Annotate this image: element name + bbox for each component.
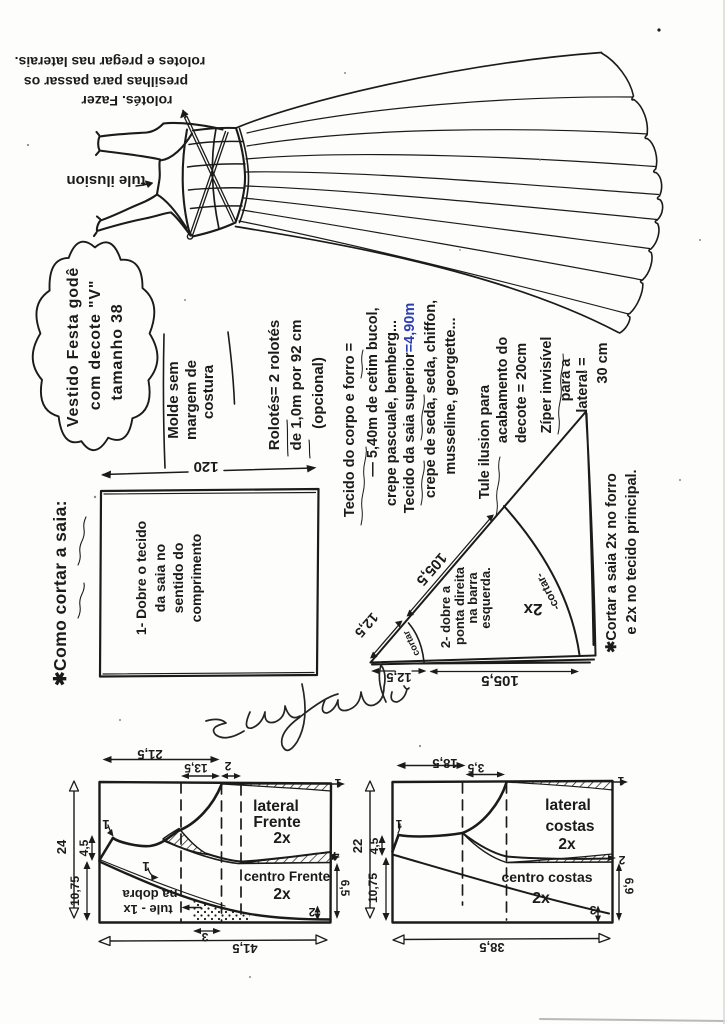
svg-text:1- Dobre o tecido: 1- Dobre o tecido	[133, 521, 149, 635]
svg-text:120: 120	[193, 458, 218, 475]
svg-text:tamanho 38: tamanho 38	[109, 304, 126, 401]
svg-text:lateral: lateral	[253, 798, 299, 815]
svg-text:1: 1	[102, 817, 109, 832]
svg-text:tule - 1x: tule - 1x	[123, 902, 173, 917]
svg-text:1: 1	[334, 776, 341, 790]
svg-text:2x: 2x	[273, 886, 291, 903]
svg-text:2: 2	[308, 905, 315, 919]
svg-text:esquerda.: esquerda.	[478, 567, 493, 628]
svg-text:Zíper invisível: Zíper invisível	[539, 337, 555, 434]
svg-text:4,5: 4,5	[367, 837, 381, 854]
svg-text:13,5: 13,5	[184, 761, 208, 775]
svg-text:presilhas para passar os: presilhas para passar os	[24, 74, 188, 90]
svg-text:centro costas: centro costas	[501, 869, 592, 885]
svg-text:3: 3	[201, 930, 208, 944]
svg-text:105,5: 105,5	[481, 672, 519, 689]
svg-text:2x: 2x	[273, 830, 291, 847]
svg-text:Tecido do corpo e forro =: Tecido do corpo e forro =	[342, 343, 358, 517]
svg-text:costas: costas	[545, 818, 594, 835]
svg-text:3: 3	[589, 903, 596, 917]
svg-text:(opcional): (opcional)	[310, 357, 327, 429]
svg-text:21,5: 21,5	[137, 747, 162, 762]
svg-text:com decote "V": com decote "V"	[87, 280, 104, 410]
svg-text:18,5: 18,5	[432, 756, 457, 771]
svg-text:decote = 20cm: decote = 20cm	[514, 343, 530, 443]
svg-text:6,5: 6,5	[338, 880, 352, 897]
svg-text:10,75: 10,75	[366, 873, 380, 903]
svg-text:Rolotés= 2 rolotés: Rolotés= 2 rolotés	[266, 320, 283, 450]
svg-text:lateral =: lateral =	[575, 357, 591, 412]
svg-text:lateral: lateral	[545, 797, 591, 814]
svg-text:10,75: 10,75	[68, 876, 82, 906]
svg-text:30 cm: 30 cm	[595, 342, 611, 383]
svg-text:22: 22	[350, 839, 365, 853]
svg-text:crepe de seda, seda, chiffon,: crepe de seda, seda, chiffon,	[423, 300, 439, 498]
svg-text:Tule ilusion para: Tule ilusion para	[477, 384, 493, 499]
svg-text:1: 1	[395, 817, 402, 831]
svg-text:musseline, georgette...: musseline, georgette...	[443, 317, 459, 474]
svg-text:centro Frente: centro Frente	[244, 869, 331, 884]
svg-text:e 2x no tecido principal.: e 2x no tecido principal.	[624, 469, 640, 634]
svg-text:✱Cortar a saia 2x no forro: ✱Cortar a saia 2x no forro	[604, 473, 620, 653]
svg-text:4,5: 4,5	[77, 839, 91, 856]
svg-text:1: 1	[617, 774, 624, 788]
svg-text:Vestido Festa godê: Vestido Festa godê	[65, 267, 82, 427]
svg-text:sentido do: sentido do	[170, 543, 186, 614]
svg-text:acabamento do: acabamento do	[495, 337, 511, 443]
svg-text:2x: 2x	[523, 600, 542, 619]
svg-text:✱Como cortar a saia:: ✱Como cortar a saia:	[50, 500, 70, 686]
svg-text:margem de: margem de	[183, 360, 200, 440]
svg-text:rolotes e pregar nas laterais.: rolotes e pregar nas laterais.	[15, 54, 206, 70]
svg-text:3,5: 3,5	[467, 761, 484, 775]
svg-text:12,5: 12,5	[386, 670, 411, 685]
svg-text:24: 24	[54, 839, 69, 854]
svg-text:de 1,0m por 92 cm: de 1,0m por 92 cm	[288, 320, 305, 451]
svg-text:Molde sem: Molde sem	[165, 361, 182, 439]
svg-text:2- dobre a: 2- dobre a	[438, 585, 453, 648]
svg-text:crepe pascuale, bemberg...: crepe pascuale, bemberg...	[384, 320, 400, 506]
svg-text:38,5: 38,5	[479, 940, 504, 955]
svg-text:rolotés. Fazer: rolotés. Fazer	[81, 93, 173, 109]
svg-text:6,9: 6,9	[622, 878, 636, 895]
svg-text:da saia no: da saia no	[152, 544, 168, 612]
svg-text:Tecido da saia superior=4,90m: Tecido da saia superior=4,90m	[402, 303, 418, 514]
svg-text:2: 2	[224, 759, 231, 773]
svg-text:na dobra: na dobra	[122, 887, 178, 902]
svg-text:tule ilusion: tule ilusion	[66, 172, 145, 189]
svg-text:comprimento: comprimento	[188, 534, 204, 623]
svg-text:costura: costura	[200, 364, 217, 419]
svg-text:2x: 2x	[532, 890, 550, 907]
svg-text:— 5,40m de cetim bucol,: — 5,40m de cetim bucol,	[365, 307, 381, 476]
svg-text:2x: 2x	[558, 836, 576, 853]
svg-text:41,5: 41,5	[232, 941, 257, 956]
svg-text:Frente: Frente	[253, 814, 301, 831]
svg-text:1: 1	[142, 859, 149, 874]
